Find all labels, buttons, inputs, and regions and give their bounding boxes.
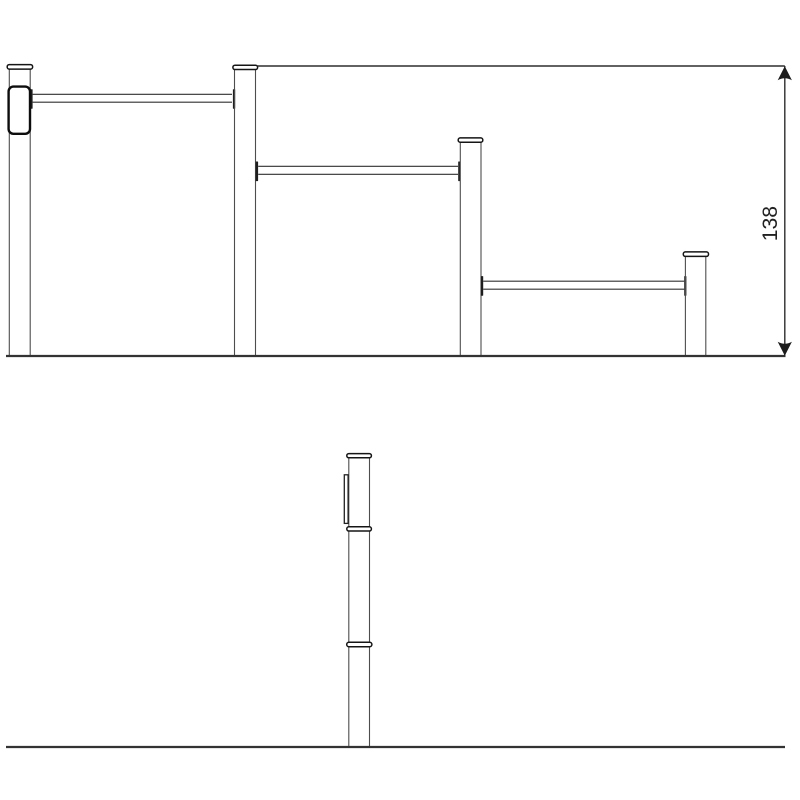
- svg-text:138: 138: [759, 206, 782, 241]
